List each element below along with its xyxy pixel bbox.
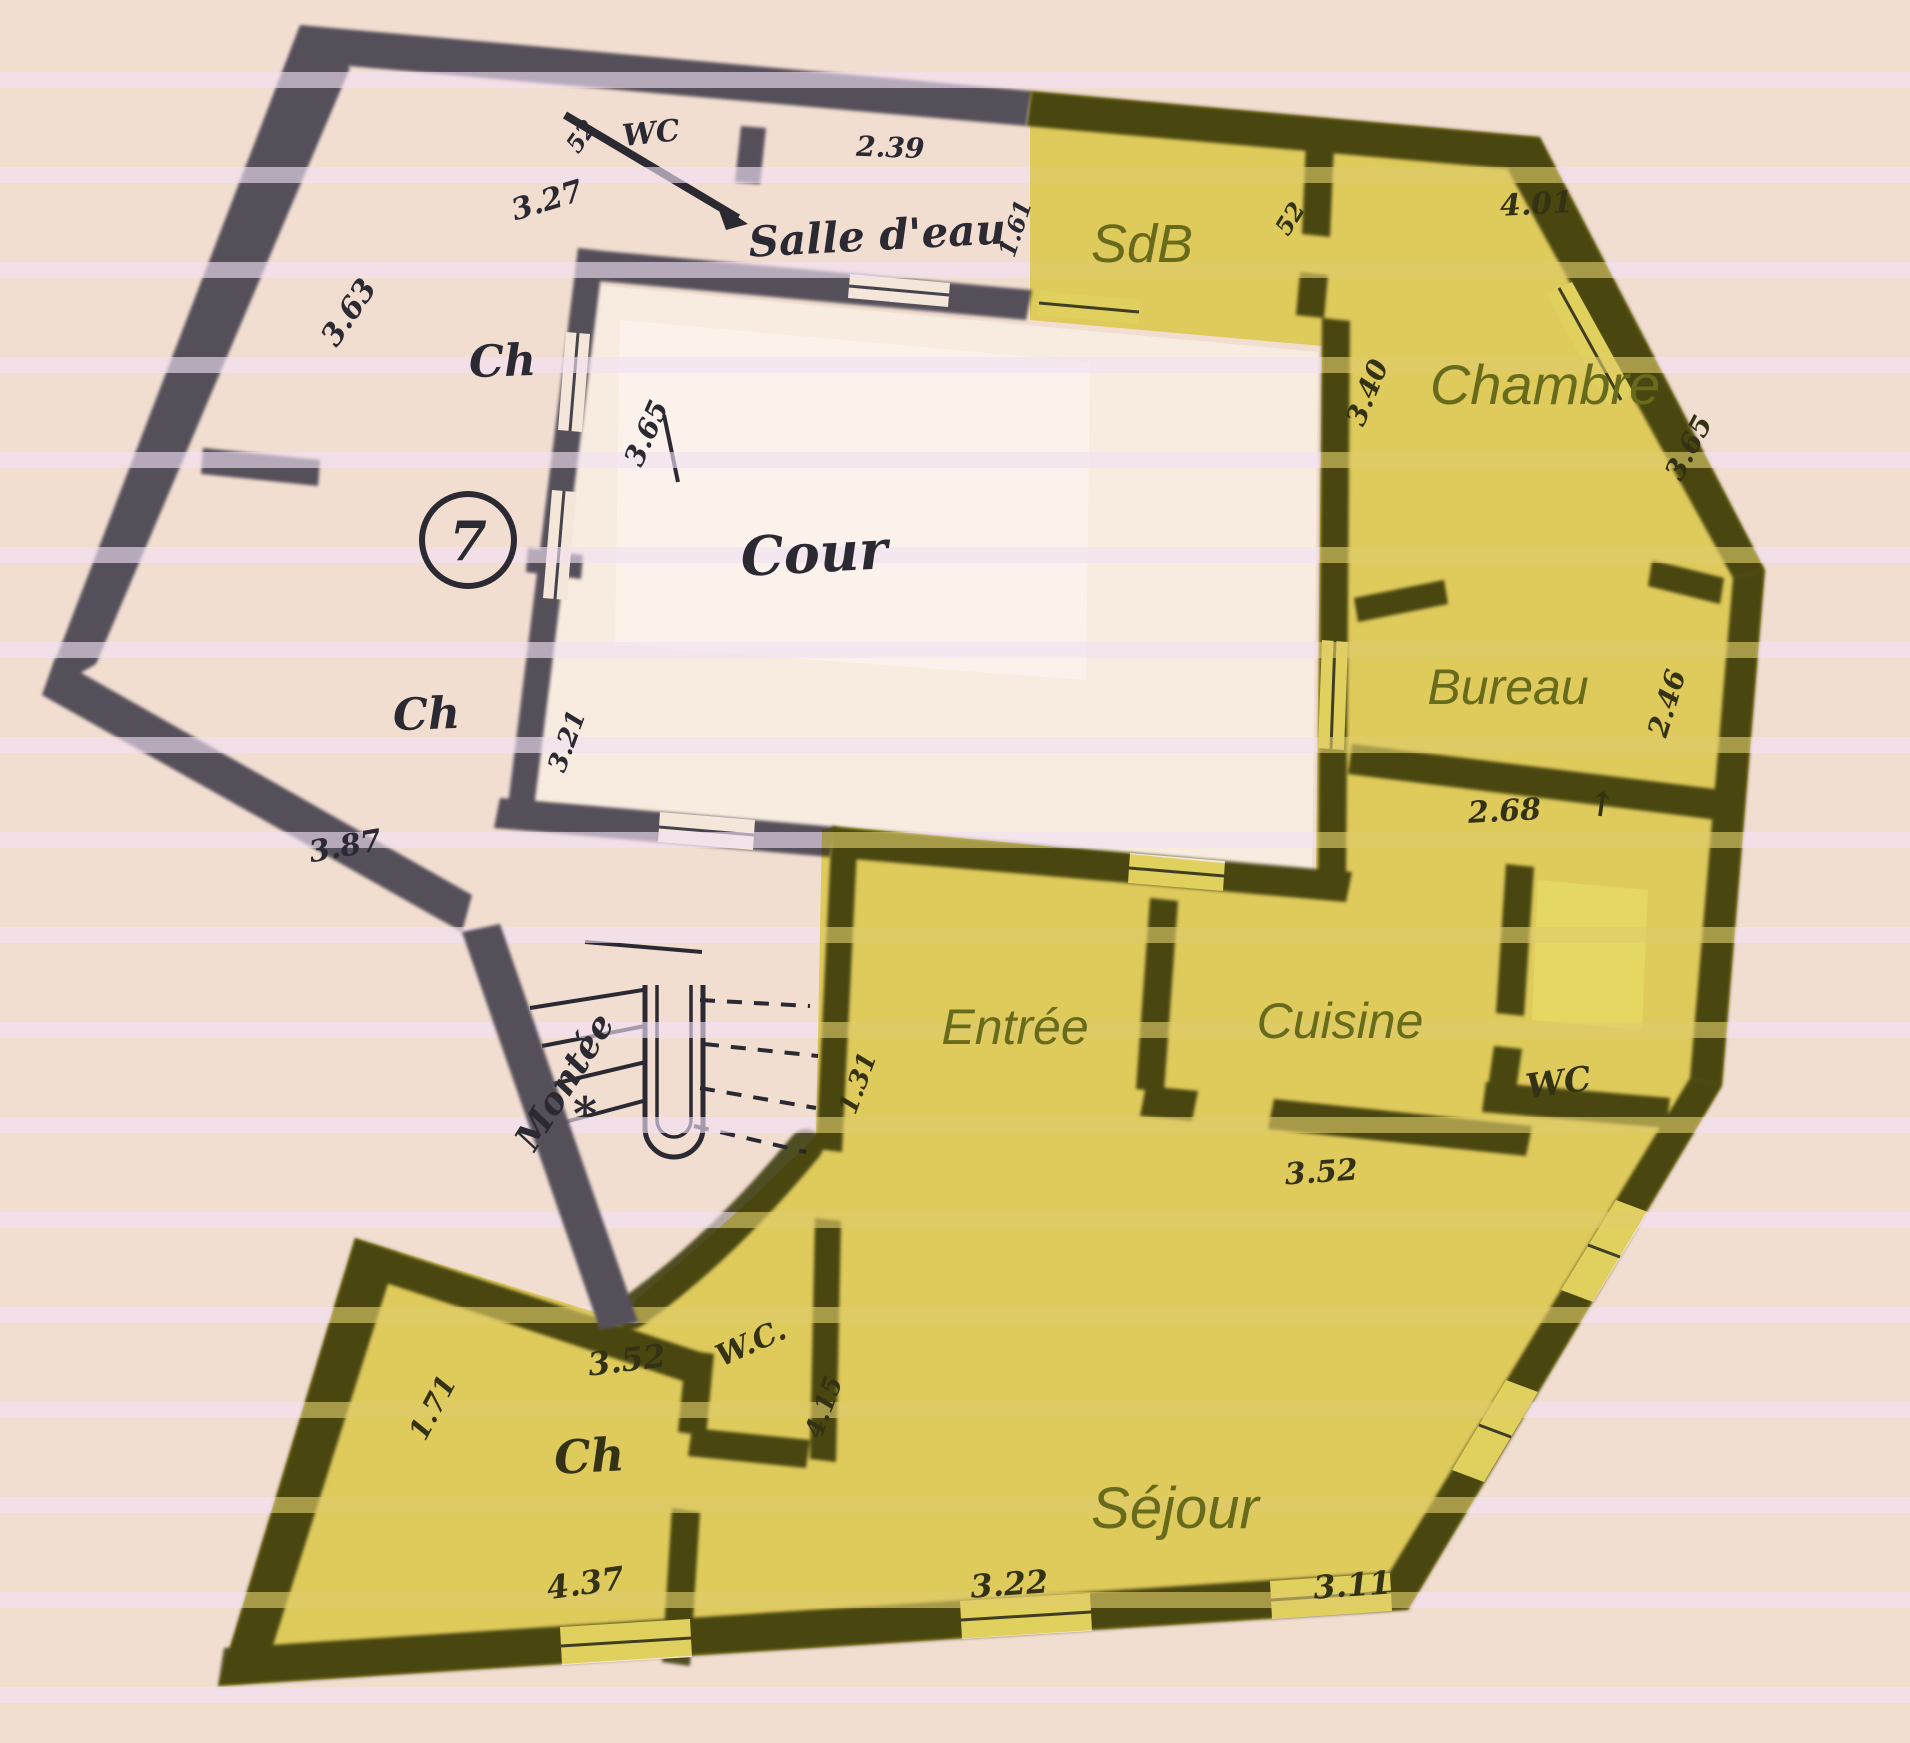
room-label-bureau: Bureau <box>1427 659 1588 715</box>
room-label-ch-lower: Ch <box>392 688 461 741</box>
room-label-cuisine: Cuisine <box>1257 993 1424 1049</box>
measurement-311: 3.11 <box>1312 1563 1392 1606</box>
room-label-ch-bottom: Ch <box>553 1427 626 1485</box>
floor-plan: 52 WC 2.39 3.27 Salle d'eau 1.61 3.63 Ch… <box>0 0 1910 1743</box>
measurement-268: 2.68 <box>1466 792 1542 831</box>
room-label-ch-upper: Ch <box>468 335 537 388</box>
room-label-chambre: Chambre <box>1430 353 1660 416</box>
apartment-number: 7 <box>449 509 487 573</box>
measurement-352-cuisine: 3.52 <box>1284 1153 1359 1193</box>
measurement-239: 2.39 <box>855 130 925 165</box>
room-label-entree: Entrée <box>941 999 1088 1055</box>
measurement-401: 4.01 <box>1499 185 1574 224</box>
room-label-sdb: SdB <box>1091 214 1193 274</box>
room-label-sejour: Séjour <box>1091 1476 1261 1541</box>
measurement-322: 3.22 <box>969 1562 1049 1605</box>
direction-arrow: ↑ <box>1585 783 1619 827</box>
room-label-wc-top: WC <box>621 113 682 154</box>
room-label-cour: Cour <box>739 517 892 589</box>
stairs-asterisk: * <box>573 1087 597 1141</box>
floor-plan-scan: 52 WC 2.39 3.27 Salle d'eau 1.61 3.63 Ch… <box>0 0 1910 1743</box>
